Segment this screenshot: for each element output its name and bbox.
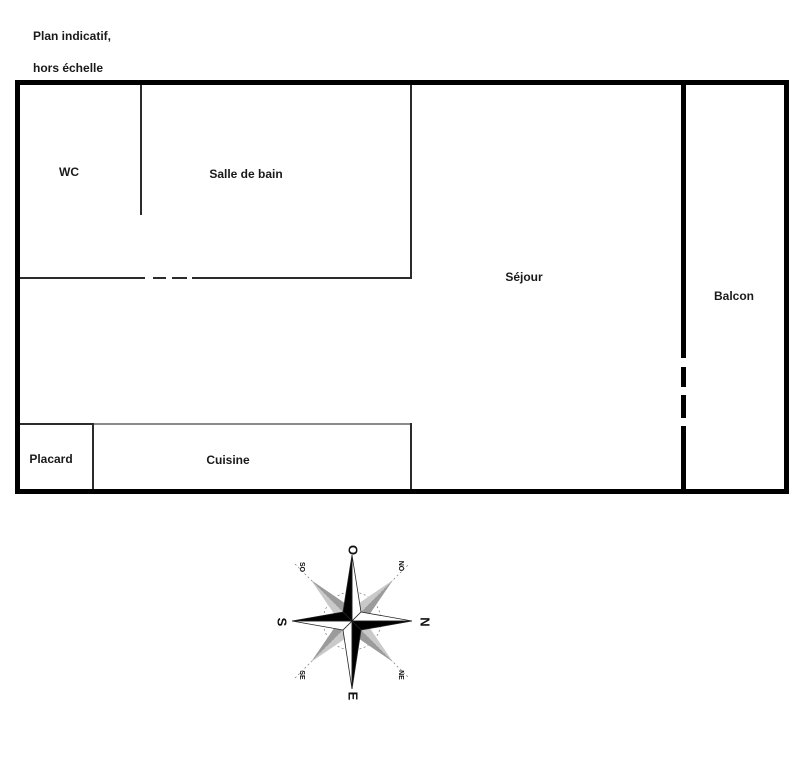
plan-note-line1: Plan indicatif, bbox=[33, 28, 111, 44]
wall-cuisine-top bbox=[94, 423, 412, 425]
wall-hall-left-segment bbox=[20, 277, 145, 279]
wall-hall-door-dash-1 bbox=[153, 277, 166, 279]
wall-bathroom-right bbox=[410, 85, 412, 279]
wall-placard-top bbox=[20, 423, 94, 425]
plan-note-line2: hors échelle bbox=[33, 60, 111, 76]
floor-plan-page: { "note": {"line1": "Plan indicatif,", "… bbox=[0, 0, 800, 760]
room-label-salle-de-bain: Salle de bain bbox=[209, 167, 282, 181]
room-label-placard: Placard bbox=[29, 452, 72, 466]
compass-label-sud: S bbox=[275, 618, 290, 627]
outer-wall bbox=[15, 80, 789, 494]
room-label-wc: WC bbox=[59, 165, 79, 179]
wall-wc-divider bbox=[140, 85, 142, 215]
compass-label-nord-ouest: NO bbox=[397, 561, 404, 572]
wall-hall-door-dash-2 bbox=[172, 277, 187, 279]
compass-label-nord: N bbox=[418, 617, 433, 626]
room-label-cuisine: Cuisine bbox=[206, 453, 249, 467]
wall-balcon-lower bbox=[681, 426, 686, 489]
compass-rose: O N E S SO NO SE NE bbox=[268, 533, 436, 709]
compass-label-nord-est: NE bbox=[397, 670, 404, 680]
wall-cuisine-right bbox=[410, 423, 412, 489]
wall-balcon-dash-1 bbox=[681, 367, 686, 387]
wall-hall-right-segment bbox=[192, 277, 412, 279]
compass-label-sud-est: SE bbox=[298, 670, 305, 680]
compass-cardinal-points bbox=[292, 555, 412, 689]
wall-balcon-dash-2 bbox=[681, 395, 686, 418]
compass-label-sud-ouest: SO bbox=[298, 562, 305, 573]
compass-label-ouest: O bbox=[346, 545, 361, 555]
room-label-sejour: Séjour bbox=[505, 270, 542, 284]
wall-balcon-upper bbox=[681, 85, 686, 358]
room-label-balcon: Balcon bbox=[714, 289, 754, 303]
wall-placard-right bbox=[92, 423, 94, 489]
compass-label-est: E bbox=[346, 692, 361, 701]
